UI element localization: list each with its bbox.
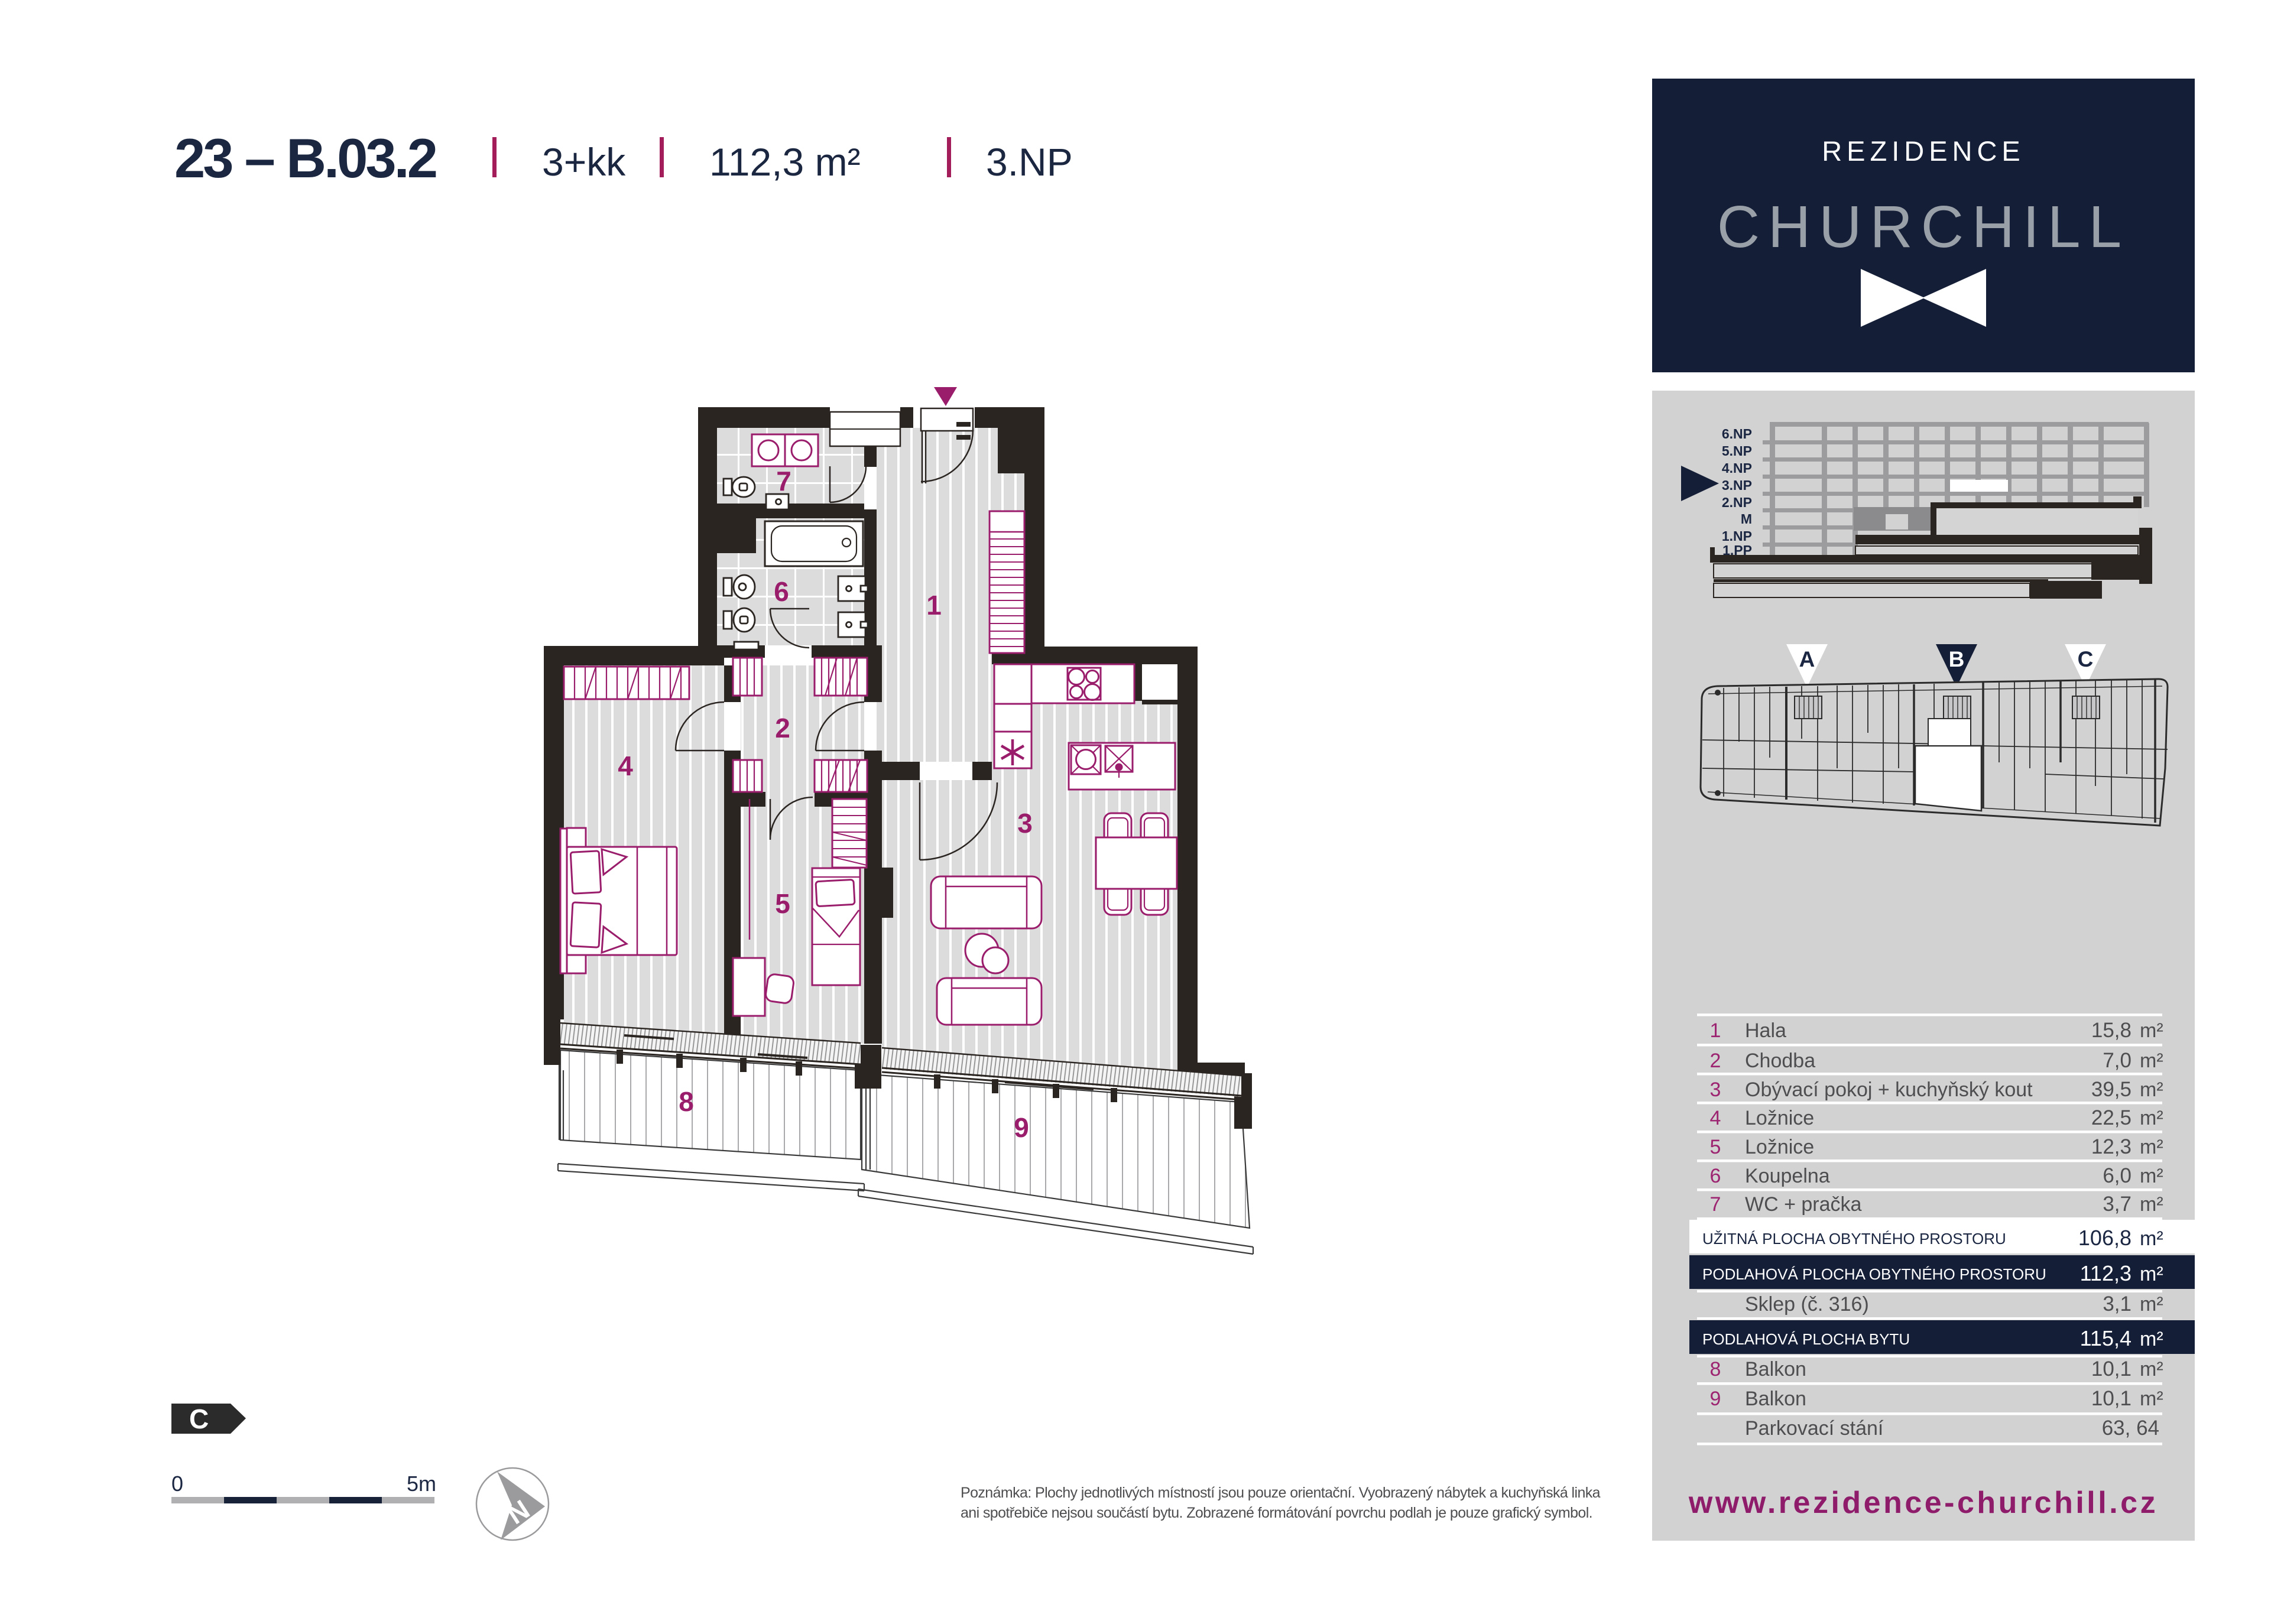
svg-text:C: C bbox=[2078, 647, 2094, 671]
svg-text:m²: m² bbox=[2140, 1050, 2163, 1072]
svg-text:15,8: 15,8 bbox=[2091, 1019, 2132, 1042]
svg-text:3.NP: 3.NP bbox=[986, 140, 1073, 184]
svg-text:Ložnice: Ložnice bbox=[1745, 1136, 1814, 1158]
svg-text:6,0: 6,0 bbox=[2103, 1164, 2132, 1187]
svg-text:ani spotřebiče nejsou součástí: ani spotřebiče nejsou součástí bytu. Zob… bbox=[961, 1505, 1592, 1521]
svg-text:6: 6 bbox=[774, 576, 789, 607]
svg-text:CHURCHILL: CHURCHILL bbox=[1717, 194, 2130, 260]
svg-text:A: A bbox=[1799, 647, 1815, 671]
svg-text:10,1: 10,1 bbox=[2091, 1387, 2132, 1410]
svg-text:3: 3 bbox=[1710, 1079, 1721, 1101]
svg-text:3,1: 3,1 bbox=[2103, 1292, 2132, 1316]
svg-text:4: 4 bbox=[618, 751, 633, 781]
svg-text:106,8: 106,8 bbox=[2078, 1226, 2132, 1250]
svg-text:PODLAHOVÁ PLOCHA OBYTNÉHO PROS: PODLAHOVÁ PLOCHA OBYTNÉHO PROSTORU bbox=[1702, 1265, 2046, 1283]
svg-text:Chodba: Chodba bbox=[1745, 1050, 1815, 1072]
svg-text:5m: 5m bbox=[407, 1472, 436, 1496]
svg-text:6: 6 bbox=[1710, 1165, 1721, 1187]
svg-text:4: 4 bbox=[1710, 1107, 1721, 1129]
svg-text:9: 9 bbox=[1710, 1388, 1721, 1410]
svg-text:112,3: 112,3 bbox=[2080, 1261, 2132, 1285]
svg-text:8: 8 bbox=[1710, 1358, 1721, 1381]
svg-text:C: C bbox=[189, 1404, 209, 1434]
svg-text:7,0: 7,0 bbox=[2103, 1049, 2132, 1072]
svg-text:115,4: 115,4 bbox=[2080, 1326, 2132, 1350]
svg-text:3: 3 bbox=[1017, 808, 1033, 839]
svg-text:39,5: 39,5 bbox=[2091, 1078, 2132, 1101]
svg-text:m²: m² bbox=[2140, 1227, 2163, 1250]
svg-text:1: 1 bbox=[1710, 1019, 1721, 1042]
svg-text:m²: m² bbox=[2140, 1165, 2163, 1187]
svg-text:5: 5 bbox=[775, 888, 790, 919]
svg-text:5: 5 bbox=[1710, 1136, 1721, 1158]
svg-text:PODLAHOVÁ PLOCHA BYTU: PODLAHOVÁ PLOCHA BYTU bbox=[1702, 1330, 1910, 1348]
svg-text:4.NP: 4.NP bbox=[1722, 460, 1752, 476]
svg-text:m²: m² bbox=[2140, 1107, 2163, 1129]
svg-text:2.NP: 2.NP bbox=[1722, 495, 1752, 510]
svg-text:0: 0 bbox=[171, 1472, 183, 1496]
svg-text:M: M bbox=[1741, 511, 1752, 527]
svg-text:Sklep (č. 316): Sklep (č. 316) bbox=[1745, 1293, 1869, 1316]
svg-text:m²: m² bbox=[2140, 1019, 2163, 1042]
svg-text:WC + pračka: WC + pračka bbox=[1745, 1193, 1862, 1216]
svg-text:9: 9 bbox=[1014, 1112, 1029, 1143]
svg-text:Ložnice: Ložnice bbox=[1745, 1107, 1814, 1129]
svg-text:Balkon: Balkon bbox=[1745, 1388, 1806, 1410]
svg-text:8: 8 bbox=[679, 1086, 694, 1117]
svg-text:23 – B.03.2: 23 – B.03.2 bbox=[174, 127, 436, 189]
svg-text:10,1: 10,1 bbox=[2091, 1357, 2132, 1381]
svg-text:m²: m² bbox=[2140, 1263, 2163, 1285]
svg-text:7: 7 bbox=[776, 466, 791, 496]
svg-text:3+kk: 3+kk bbox=[542, 140, 626, 184]
svg-text:5.NP: 5.NP bbox=[1722, 443, 1752, 459]
svg-text:REZIDENCE: REZIDENCE bbox=[1822, 135, 2025, 167]
svg-text:Hala: Hala bbox=[1745, 1019, 1786, 1042]
svg-text:m²: m² bbox=[2140, 1328, 2163, 1350]
svg-text:63, 64: 63, 64 bbox=[2102, 1417, 2159, 1440]
svg-text:Obývací pokoj + kuchyňský kout: Obývací pokoj + kuchyňský kout bbox=[1745, 1079, 2033, 1101]
svg-text:m²: m² bbox=[2140, 1293, 2163, 1316]
svg-text:3.NP: 3.NP bbox=[1722, 478, 1752, 493]
svg-text:Parkovací stání: Parkovací stání bbox=[1745, 1417, 1884, 1440]
svg-text:Koupelna: Koupelna bbox=[1745, 1165, 1830, 1187]
svg-text:1: 1 bbox=[926, 590, 942, 621]
svg-text:www.rezidence-churchill.cz: www.rezidence-churchill.cz bbox=[1688, 1486, 2158, 1520]
svg-text:2: 2 bbox=[1710, 1050, 1721, 1072]
svg-text:B: B bbox=[1949, 647, 1965, 671]
svg-text:2: 2 bbox=[775, 713, 790, 743]
svg-text:m²: m² bbox=[2140, 1358, 2163, 1381]
svg-text:Poznámka: Plochy jednotlivých: Poznámka: Plochy jednotlivých místností … bbox=[961, 1485, 1601, 1501]
svg-text:UŽITNÁ PLOCHA OBYTNÉHO PROSTOR: UŽITNÁ PLOCHA OBYTNÉHO PROSTORU bbox=[1702, 1230, 2006, 1248]
svg-text:6.NP: 6.NP bbox=[1722, 426, 1752, 441]
svg-text:m²: m² bbox=[2140, 1136, 2163, 1158]
svg-text:3,7: 3,7 bbox=[2103, 1193, 2132, 1216]
svg-text:1.NP: 1.NP bbox=[1722, 528, 1752, 544]
svg-text:m²: m² bbox=[2140, 1079, 2163, 1101]
svg-text:112,3 m²: 112,3 m² bbox=[709, 140, 861, 184]
svg-text:22,5: 22,5 bbox=[2091, 1106, 2132, 1129]
svg-text:12,3: 12,3 bbox=[2091, 1135, 2132, 1158]
svg-text:m²: m² bbox=[2140, 1388, 2163, 1410]
svg-text:Balkon: Balkon bbox=[1745, 1358, 1806, 1381]
svg-text:m²: m² bbox=[2140, 1193, 2163, 1216]
svg-text:7: 7 bbox=[1710, 1193, 1721, 1216]
